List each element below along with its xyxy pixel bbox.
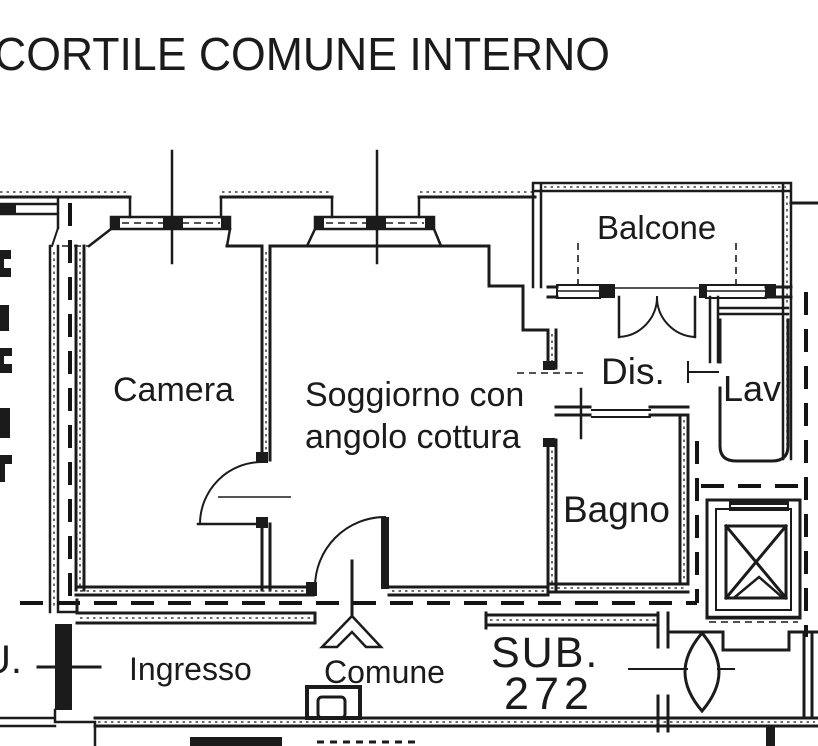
label-sub-number: 272 (504, 668, 594, 719)
vestibule-right-wall (804, 632, 812, 718)
door-soggiorno-dis (517, 361, 583, 447)
neighbor-window-block (0, 205, 16, 215)
door-leaf (381, 517, 389, 589)
balcony-window-wall (548, 284, 791, 337)
door-arc (619, 297, 657, 337)
door-arc (315, 517, 385, 587)
bottom-edge-bar (190, 737, 282, 746)
text-fragment (0, 455, 12, 482)
label-comune: Comune (324, 654, 445, 690)
text-fragment (0, 250, 11, 277)
wall-pier (600, 284, 615, 298)
arrow-head (322, 616, 381, 647)
building-shell (0, 192, 818, 203)
elevator-x-icon (726, 526, 786, 598)
label-bagno: Bagno (563, 489, 670, 530)
door-arc (657, 297, 695, 337)
label-dis: Dis. (601, 351, 665, 392)
neighbor-flare (52, 228, 58, 246)
label-left-cutoff: U. (0, 638, 22, 682)
dis-lav-door-leaf (688, 362, 718, 382)
floor-plan-drawing: CORTILE COMUNE INTERNO (0, 0, 818, 746)
door-jamb (543, 438, 555, 447)
door-jamb (543, 361, 555, 370)
label-ingresso: Ingresso (129, 651, 252, 687)
dis-bagno-door-leaf (592, 410, 650, 417)
door-entrance (306, 517, 389, 596)
corridor-step (766, 726, 775, 746)
label-lav: Lav (723, 368, 781, 409)
text-fragment (0, 408, 10, 438)
text-fragment (0, 305, 9, 331)
labels: Camera Soggiorno con angolo cottura Balc… (0, 209, 781, 719)
sill-block (111, 218, 120, 228)
lav-top-wall (720, 308, 788, 314)
bay-flares (307, 229, 441, 246)
window-axis-tick (578, 243, 736, 284)
text-fragment (0, 348, 12, 373)
door-jamb (256, 517, 268, 528)
room-camera-walls (62, 246, 270, 590)
duct-box (307, 687, 360, 718)
bay-flares (89, 229, 230, 246)
elevator-shaft (707, 500, 800, 622)
label-soggiorno-line1: Soggiorno con (305, 376, 524, 414)
french-door-balcony (619, 297, 695, 337)
dis-lav-wall (710, 297, 718, 362)
cutoff-vertical-text-fragments (0, 250, 12, 482)
bay-sides (332, 197, 419, 217)
wall-segment (548, 287, 557, 297)
neighbor-bottom-walls (0, 710, 95, 746)
sill-block (315, 218, 324, 228)
door-camera (198, 452, 291, 528)
label-camera: Camera (113, 371, 234, 409)
label-soggiorno-line2: angolo cottura (305, 418, 521, 456)
door-jamb (306, 582, 317, 596)
floor-plan-page: CORTILE COMUNE INTERNO (0, 0, 818, 746)
sill-block (425, 218, 434, 228)
sill-block (221, 218, 230, 228)
door-jamb (256, 452, 268, 463)
page-title: CORTILE COMUNE INTERNO (0, 28, 610, 80)
bay-sides (130, 197, 221, 217)
pivot-door-diamond-icon (685, 633, 719, 711)
duct-box-outer (307, 687, 360, 718)
label-balcone: Balcone (597, 209, 716, 246)
wall-pier (699, 284, 706, 298)
door-arc (200, 462, 262, 524)
window-bay-camera (89, 151, 230, 263)
room-bagno-walls (680, 415, 688, 584)
top-wall (0, 197, 818, 203)
soggiorno-notch (489, 246, 548, 330)
